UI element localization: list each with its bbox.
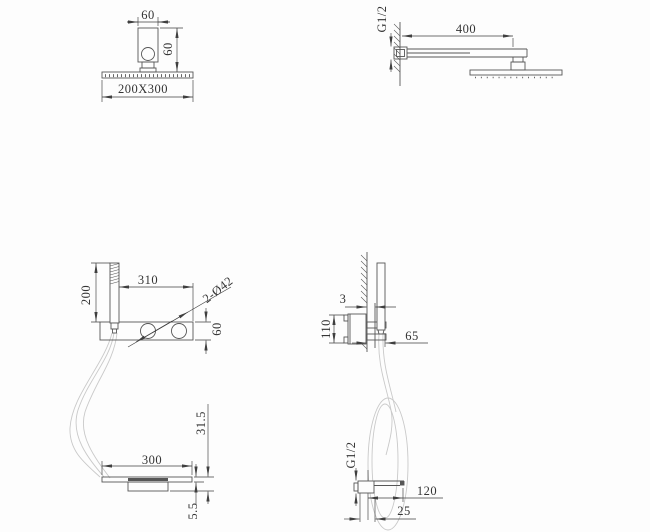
arm-joint bbox=[513, 57, 523, 62]
dimension-offset bbox=[352, 333, 428, 347]
dimension-valve-height bbox=[329, 315, 344, 343]
waterfall-slot bbox=[128, 478, 168, 481]
dimension-handshower-height bbox=[91, 263, 110, 322]
dimension-body-height bbox=[195, 308, 211, 354]
handle-hole-left bbox=[141, 324, 156, 339]
hose-loops bbox=[368, 398, 408, 530]
in-wall-valve bbox=[344, 314, 366, 344]
spout-tip bbox=[400, 481, 404, 486]
wall-connector bbox=[394, 47, 407, 59]
spout-arm bbox=[374, 481, 404, 486]
wall-hatching bbox=[394, 24, 400, 72]
hand-shower-side bbox=[377, 263, 385, 334]
shower-arm bbox=[407, 49, 527, 70]
shower-head-side bbox=[470, 70, 562, 78]
ball-joint bbox=[142, 48, 155, 61]
dimension-width bbox=[102, 461, 192, 475]
shower-drawing-geometry bbox=[0, 0, 650, 532]
dimension-drop-height bbox=[160, 28, 183, 72]
waterfall-spout-front-view bbox=[102, 404, 214, 505]
spout-inlet bbox=[354, 481, 374, 493]
shower-hose bbox=[70, 333, 117, 478]
shower-head-plate bbox=[102, 72, 193, 78]
spout-body bbox=[128, 482, 168, 491]
dimension-arm-length bbox=[402, 36, 513, 47]
overhead-shower-front-view bbox=[102, 17, 193, 102]
hand-shower bbox=[110, 263, 119, 333]
mixer-panel-side-view bbox=[329, 252, 428, 455]
dimension-head-size bbox=[102, 80, 193, 102]
dimension-arm-width bbox=[127, 17, 170, 26]
shower-hose bbox=[379, 334, 396, 455]
mixer-panel-front-view bbox=[70, 263, 231, 478]
technical-drawing-canvas: 60 60 200X300 G1/2 400 200 310 2-Ø42 60 … bbox=[0, 0, 650, 532]
waterfall-spout-side-view bbox=[344, 398, 443, 530]
leader-holes bbox=[128, 287, 231, 347]
overhead-shower-side-view bbox=[391, 22, 562, 86]
dimension-height bbox=[170, 404, 214, 504]
dimension-lip bbox=[194, 464, 204, 505]
ceiling-arm bbox=[138, 28, 158, 72]
handle-hole-right bbox=[172, 324, 187, 339]
